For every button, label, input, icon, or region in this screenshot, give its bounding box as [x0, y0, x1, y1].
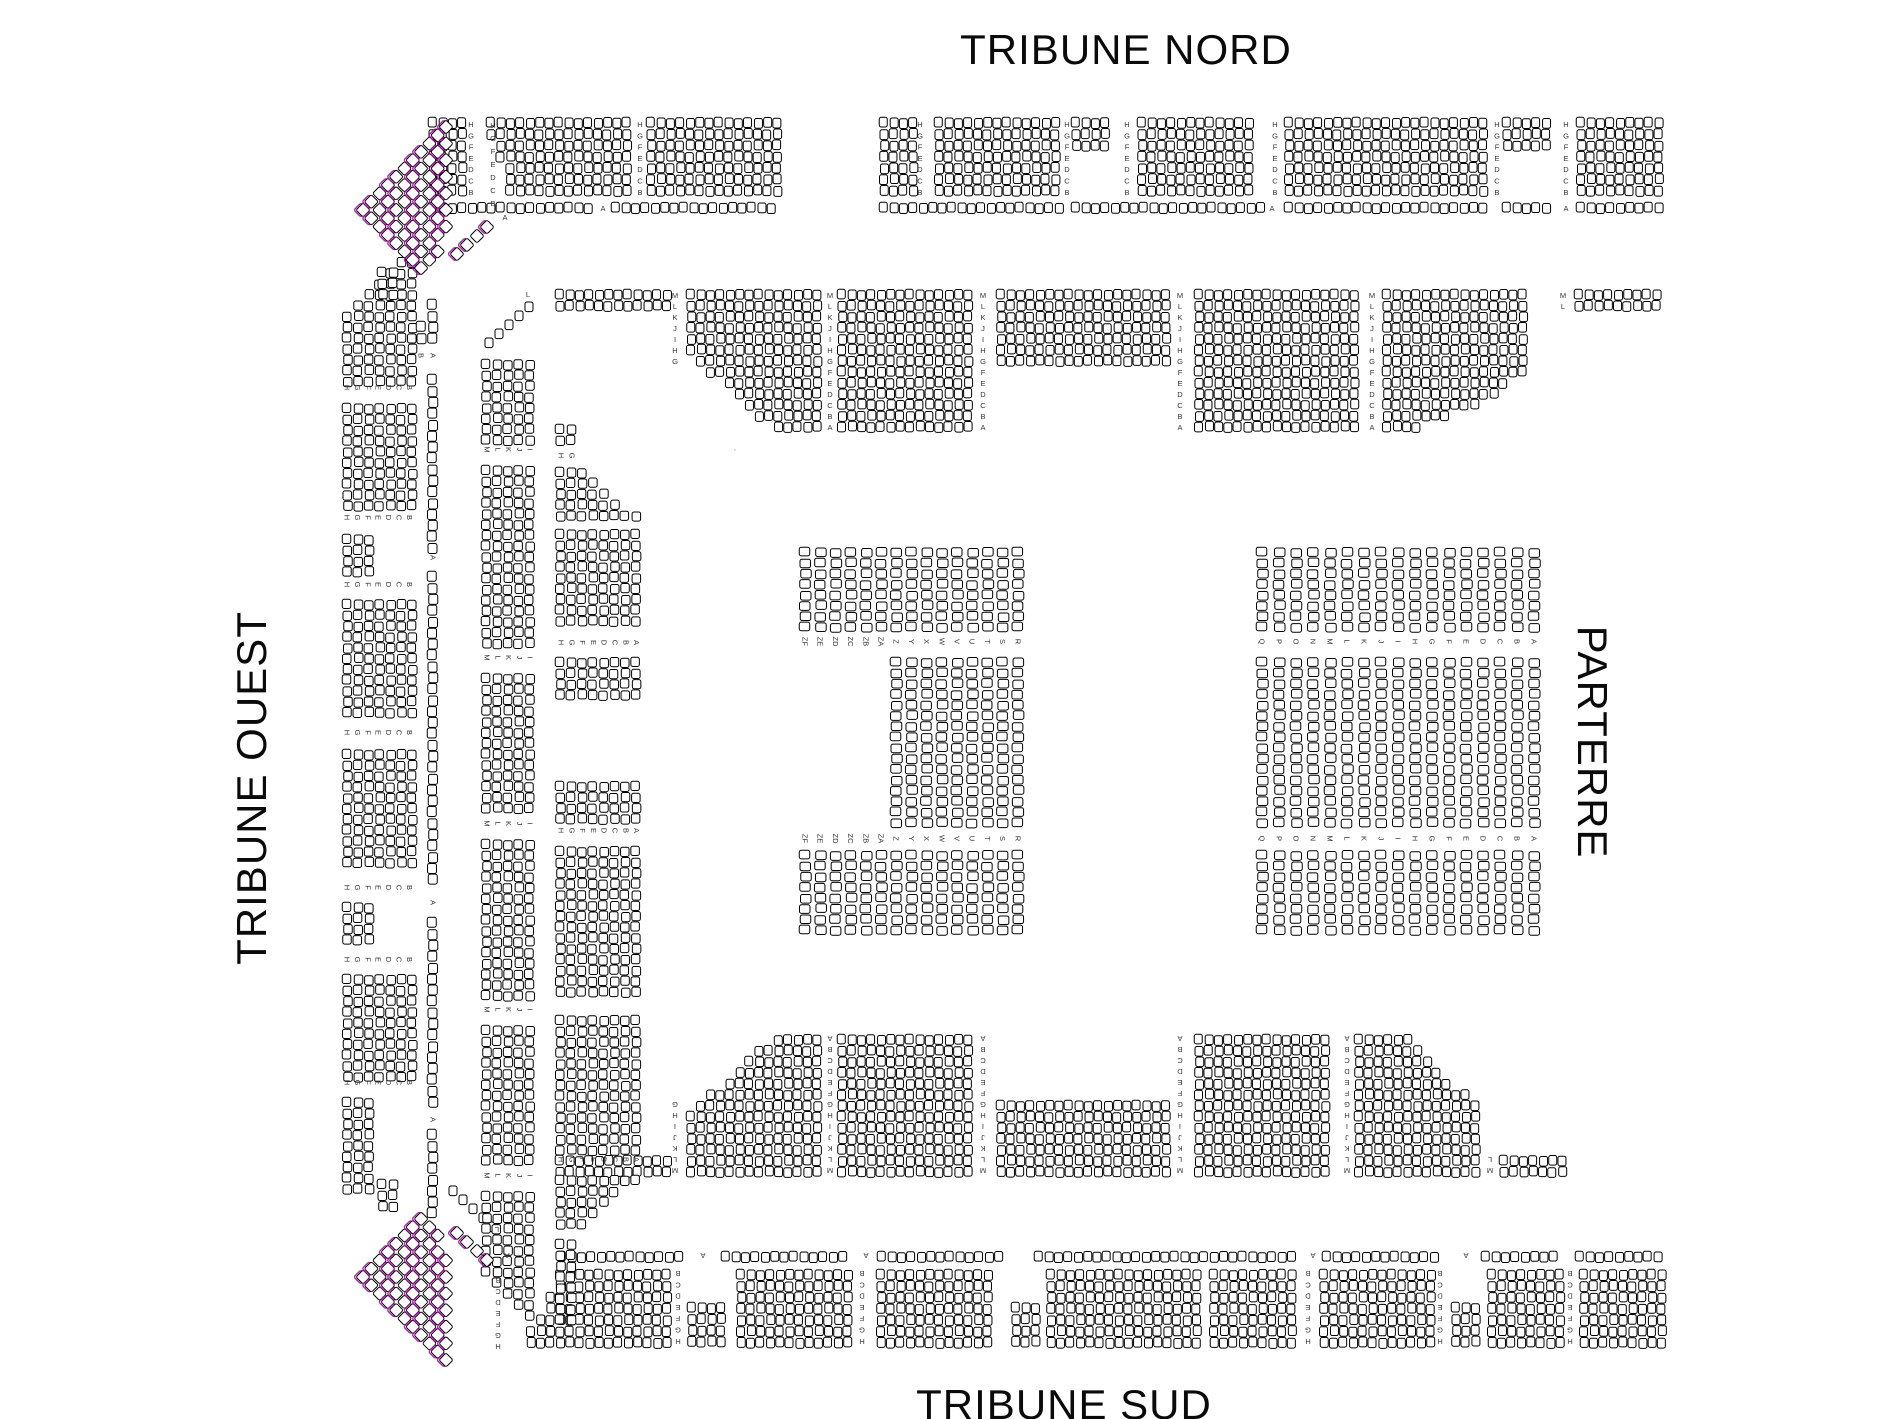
- seat[interactable]: [887, 1035, 895, 1045]
- seat[interactable]: [1295, 174, 1303, 184]
- seat[interactable]: [1596, 185, 1604, 195]
- seat[interactable]: [492, 707, 501, 716]
- seat[interactable]: [1286, 141, 1294, 151]
- seat[interactable]: [1312, 1091, 1320, 1101]
- seat[interactable]: [794, 1057, 802, 1067]
- seat[interactable]: [1273, 1079, 1281, 1089]
- seat[interactable]: [1374, 1134, 1382, 1144]
- seat[interactable]: [687, 1167, 695, 1177]
- seat[interactable]: [1360, 1271, 1368, 1281]
- seat[interactable]: [1411, 174, 1419, 184]
- seat[interactable]: [945, 1338, 953, 1348]
- seat[interactable]: [1426, 1326, 1434, 1336]
- seat[interactable]: [708, 1315, 716, 1325]
- seat[interactable]: [907, 1057, 915, 1067]
- seat[interactable]: [848, 411, 856, 421]
- seat[interactable]: [907, 1315, 915, 1325]
- seat[interactable]: [483, 1146, 492, 1155]
- seat[interactable]: [482, 425, 491, 434]
- seat[interactable]: [397, 622, 406, 631]
- seat[interactable]: [481, 990, 490, 999]
- seat[interactable]: [1224, 290, 1232, 300]
- seat[interactable]: [1388, 1303, 1396, 1313]
- seat[interactable]: [1461, 722, 1472, 731]
- seat[interactable]: [1138, 175, 1146, 185]
- seat[interactable]: [847, 1102, 855, 1112]
- seat[interactable]: [705, 140, 713, 150]
- seat[interactable]: [1442, 301, 1450, 311]
- seat[interactable]: [503, 695, 512, 704]
- seat[interactable]: [1096, 1327, 1104, 1337]
- seat[interactable]: [1084, 1167, 1092, 1177]
- seat[interactable]: [576, 1304, 584, 1314]
- seat[interactable]: [585, 1166, 593, 1176]
- seat[interactable]: [667, 151, 675, 161]
- seat[interactable]: [1115, 1282, 1123, 1292]
- seat[interactable]: [1071, 117, 1079, 127]
- seat[interactable]: [375, 479, 384, 488]
- seat[interactable]: [364, 924, 373, 933]
- seat[interactable]: [858, 322, 866, 332]
- seat[interactable]: [1407, 1316, 1415, 1326]
- seat[interactable]: [1252, 411, 1260, 421]
- seat[interactable]: [815, 558, 826, 567]
- seat[interactable]: [605, 1315, 613, 1325]
- seat[interactable]: [906, 1270, 914, 1280]
- seat[interactable]: [1204, 1123, 1212, 1133]
- seat[interactable]: [881, 164, 889, 174]
- seat[interactable]: [1056, 1168, 1064, 1178]
- seat[interactable]: [695, 162, 703, 172]
- seat[interactable]: [1048, 1293, 1056, 1303]
- seat[interactable]: [916, 1058, 924, 1068]
- seat[interactable]: [964, 1337, 972, 1347]
- seat[interactable]: [890, 163, 898, 173]
- seat[interactable]: [1275, 548, 1286, 557]
- seat[interactable]: [716, 290, 724, 300]
- seat[interactable]: [1646, 141, 1654, 151]
- seat[interactable]: [1461, 334, 1469, 344]
- seat[interactable]: [886, 1155, 894, 1165]
- seat[interactable]: [1013, 1326, 1021, 1336]
- seat[interactable]: [1204, 1068, 1212, 1078]
- seat[interactable]: [1278, 1253, 1286, 1263]
- seat[interactable]: [952, 883, 963, 892]
- seat[interactable]: [386, 709, 395, 718]
- seat[interactable]: [596, 1293, 604, 1303]
- seat[interactable]: [1355, 1068, 1363, 1078]
- seat[interactable]: [1311, 356, 1319, 366]
- seat[interactable]: [1224, 1112, 1232, 1122]
- seat[interactable]: [916, 367, 924, 377]
- seat[interactable]: [1342, 915, 1353, 924]
- seat[interactable]: [515, 883, 524, 892]
- seat[interactable]: [1151, 1167, 1159, 1177]
- seat[interactable]: [1314, 129, 1322, 139]
- seat[interactable]: [767, 1315, 775, 1325]
- seat[interactable]: [1410, 712, 1421, 721]
- seat[interactable]: [952, 580, 963, 589]
- seat[interactable]: [1176, 153, 1184, 163]
- seat[interactable]: [1091, 204, 1099, 214]
- seat[interactable]: [1226, 175, 1234, 185]
- seat[interactable]: [1031, 1325, 1039, 1335]
- seat[interactable]: [385, 804, 394, 813]
- seat[interactable]: [715, 313, 723, 323]
- seat[interactable]: [515, 141, 523, 151]
- seat[interactable]: [756, 312, 764, 322]
- seat[interactable]: [1094, 1157, 1102, 1167]
- seat[interactable]: [554, 175, 562, 185]
- seat[interactable]: [449, 130, 457, 140]
- seat[interactable]: [1375, 925, 1386, 934]
- seat[interactable]: [1205, 313, 1213, 323]
- seat[interactable]: [1444, 894, 1455, 903]
- seat[interactable]: [954, 1124, 962, 1134]
- seat[interactable]: [1393, 1090, 1401, 1100]
- seat[interactable]: [1445, 808, 1456, 817]
- seat[interactable]: [1085, 1133, 1093, 1143]
- seat[interactable]: [408, 1008, 417, 1017]
- seat[interactable]: [1341, 744, 1352, 753]
- seat[interactable]: [968, 712, 979, 721]
- seat[interactable]: [503, 1047, 512, 1056]
- seat[interactable]: [891, 926, 902, 935]
- seat[interactable]: [686, 289, 694, 299]
- seat[interactable]: [1409, 612, 1420, 621]
- seat[interactable]: [844, 1271, 852, 1281]
- seat[interactable]: [815, 894, 826, 903]
- seat[interactable]: [595, 301, 603, 311]
- seat[interactable]: [1205, 367, 1213, 377]
- seat[interactable]: [813, 1167, 821, 1177]
- seat[interactable]: [1383, 163, 1391, 173]
- seat[interactable]: [1113, 1252, 1121, 1262]
- seat[interactable]: [1243, 1124, 1251, 1134]
- seat[interactable]: [546, 1337, 554, 1347]
- seat[interactable]: [774, 1080, 782, 1090]
- seat[interactable]: [935, 1068, 943, 1078]
- seat[interactable]: [1325, 776, 1336, 785]
- seat[interactable]: [1376, 722, 1387, 731]
- seat[interactable]: [1234, 312, 1242, 322]
- seat[interactable]: [1394, 851, 1405, 860]
- seat[interactable]: [1529, 872, 1540, 881]
- seat[interactable]: [1377, 592, 1388, 601]
- seat[interactable]: [1450, 129, 1458, 139]
- seat[interactable]: [365, 345, 374, 354]
- seat[interactable]: [428, 333, 437, 343]
- seat[interactable]: [906, 743, 917, 752]
- seat[interactable]: [1233, 401, 1241, 411]
- seat[interactable]: [376, 490, 385, 499]
- seat[interactable]: [1512, 894, 1523, 903]
- seat[interactable]: [387, 751, 396, 760]
- seat[interactable]: [387, 501, 396, 510]
- seat[interactable]: [1404, 1134, 1412, 1144]
- seat[interactable]: [1610, 1315, 1618, 1325]
- seat[interactable]: [1496, 776, 1507, 785]
- seat[interactable]: [525, 685, 534, 694]
- seat[interactable]: [805, 1282, 813, 1292]
- seat[interactable]: [514, 862, 523, 871]
- seat[interactable]: [1481, 356, 1489, 366]
- seat[interactable]: [493, 1124, 502, 1133]
- seat[interactable]: [1460, 301, 1468, 311]
- seat[interactable]: [1369, 1304, 1377, 1314]
- seat[interactable]: [915, 1305, 923, 1315]
- seat[interactable]: [555, 164, 563, 174]
- seat[interactable]: [587, 1252, 595, 1262]
- seat[interactable]: [574, 119, 582, 129]
- seat[interactable]: [1195, 163, 1203, 173]
- seat[interactable]: [1014, 569, 1025, 578]
- seat[interactable]: [1293, 411, 1301, 421]
- seat[interactable]: [1096, 1270, 1104, 1280]
- seat[interactable]: [427, 1208, 436, 1218]
- seat[interactable]: [1182, 1269, 1190, 1279]
- seat[interactable]: [397, 815, 406, 824]
- seat[interactable]: [937, 797, 948, 806]
- seat[interactable]: [1292, 764, 1303, 773]
- seat[interactable]: [1461, 390, 1469, 400]
- seat[interactable]: [1331, 400, 1339, 410]
- seat[interactable]: [1301, 345, 1309, 355]
- seat[interactable]: [1308, 808, 1319, 817]
- seat[interactable]: [408, 490, 417, 499]
- seat[interactable]: [376, 760, 385, 769]
- seat[interactable]: [546, 187, 554, 197]
- seat[interactable]: [343, 458, 352, 467]
- seat[interactable]: [907, 711, 918, 720]
- seat[interactable]: [482, 728, 491, 737]
- seat[interactable]: [889, 129, 897, 139]
- seat[interactable]: [1427, 883, 1438, 892]
- seat[interactable]: [955, 130, 963, 140]
- seat[interactable]: [1161, 1101, 1169, 1111]
- seat[interactable]: [365, 1174, 374, 1183]
- seat[interactable]: [504, 851, 512, 860]
- seat[interactable]: [482, 392, 491, 401]
- seat[interactable]: [504, 1080, 512, 1089]
- seat[interactable]: [1032, 129, 1040, 139]
- seat[interactable]: [428, 520, 437, 530]
- seat[interactable]: [736, 367, 744, 377]
- seat[interactable]: [1085, 1326, 1093, 1336]
- seat[interactable]: [698, 1303, 706, 1313]
- seat[interactable]: [1634, 301, 1642, 311]
- seat[interactable]: [875, 862, 886, 871]
- seat[interactable]: [1341, 559, 1352, 568]
- seat[interactable]: [1179, 204, 1187, 214]
- seat[interactable]: [1413, 1167, 1421, 1177]
- seat[interactable]: [1451, 356, 1459, 366]
- seat[interactable]: [1513, 141, 1521, 151]
- seat[interactable]: [1301, 1069, 1309, 1079]
- seat[interactable]: [983, 548, 994, 557]
- seat[interactable]: [574, 140, 582, 150]
- seat[interactable]: [688, 1134, 696, 1144]
- seat[interactable]: [1559, 1167, 1567, 1177]
- seat[interactable]: [1513, 808, 1524, 817]
- seat[interactable]: [643, 291, 651, 301]
- seat[interactable]: [899, 164, 907, 174]
- seat[interactable]: [1359, 1337, 1367, 1347]
- seat[interactable]: [764, 118, 772, 128]
- seat[interactable]: [1214, 1036, 1222, 1046]
- seat[interactable]: [1590, 1315, 1598, 1325]
- seat[interactable]: [515, 370, 524, 379]
- seat[interactable]: [1075, 1155, 1083, 1165]
- seat[interactable]: [1113, 1144, 1121, 1154]
- seat[interactable]: [536, 141, 544, 151]
- seat[interactable]: [1193, 1270, 1201, 1280]
- seat[interactable]: [564, 186, 572, 196]
- seat[interactable]: [1273, 411, 1281, 421]
- seat[interactable]: [1528, 1271, 1536, 1281]
- seat[interactable]: [1372, 140, 1380, 150]
- seat[interactable]: [696, 152, 704, 162]
- seat[interactable]: [1376, 819, 1387, 828]
- seat[interactable]: [535, 186, 543, 196]
- seat[interactable]: [1403, 1101, 1411, 1111]
- seat[interactable]: [877, 1251, 885, 1261]
- seat[interactable]: [1275, 786, 1286, 795]
- seat[interactable]: [964, 345, 972, 355]
- seat[interactable]: [457, 141, 465, 151]
- seat[interactable]: [428, 639, 437, 649]
- seat[interactable]: [706, 1101, 714, 1111]
- seat[interactable]: [515, 1036, 524, 1045]
- seat[interactable]: [776, 1337, 784, 1347]
- seat[interactable]: [945, 312, 953, 322]
- seat[interactable]: [1443, 711, 1454, 720]
- seat[interactable]: [804, 323, 812, 333]
- seat[interactable]: [1359, 808, 1370, 817]
- seat[interactable]: [525, 1135, 534, 1144]
- seat[interactable]: [429, 421, 438, 431]
- seat[interactable]: [1065, 335, 1073, 345]
- seat[interactable]: [545, 118, 553, 128]
- seat[interactable]: [1529, 809, 1540, 818]
- seat[interactable]: [1013, 711, 1024, 720]
- seat[interactable]: [1403, 1078, 1411, 1088]
- seat[interactable]: [724, 129, 732, 139]
- seat[interactable]: [1409, 722, 1420, 731]
- seat[interactable]: [408, 1061, 417, 1070]
- seat[interactable]: [1301, 422, 1309, 432]
- seat[interactable]: [1402, 175, 1410, 185]
- seat[interactable]: [386, 344, 395, 353]
- seat[interactable]: [906, 1047, 914, 1057]
- seat[interactable]: [1402, 203, 1410, 213]
- seat[interactable]: [757, 1303, 765, 1313]
- seat[interactable]: [1649, 1293, 1657, 1303]
- seat[interactable]: [1384, 1112, 1392, 1122]
- seat[interactable]: [365, 611, 374, 620]
- seat[interactable]: [1016, 291, 1024, 301]
- seat[interactable]: [1440, 175, 1448, 185]
- seat[interactable]: [1075, 1145, 1083, 1155]
- seat[interactable]: [387, 355, 396, 364]
- seat[interactable]: [1644, 117, 1652, 127]
- seat[interactable]: [1393, 798, 1404, 807]
- seat[interactable]: [429, 774, 438, 784]
- seat[interactable]: [1343, 140, 1351, 150]
- seat[interactable]: [503, 980, 512, 989]
- seat[interactable]: [774, 1157, 782, 1167]
- seat[interactable]: [936, 1252, 944, 1262]
- seat[interactable]: [921, 809, 932, 818]
- seat[interactable]: [813, 1056, 821, 1066]
- seat[interactable]: [984, 141, 992, 151]
- seat[interactable]: [1205, 344, 1213, 354]
- seat[interactable]: [775, 1326, 783, 1336]
- seat[interactable]: [504, 1027, 512, 1036]
- seat[interactable]: [925, 312, 933, 322]
- seat[interactable]: [896, 1271, 904, 1281]
- seat[interactable]: [1460, 185, 1468, 195]
- seat[interactable]: [697, 1166, 705, 1176]
- seat[interactable]: [936, 1281, 944, 1291]
- seat[interactable]: [1379, 1339, 1387, 1349]
- seat[interactable]: [1445, 549, 1456, 558]
- seat[interactable]: [756, 1337, 764, 1347]
- seat[interactable]: [526, 916, 535, 925]
- seat[interactable]: [846, 861, 857, 870]
- seat[interactable]: [1462, 580, 1473, 589]
- seat[interactable]: [935, 423, 943, 433]
- seat[interactable]: [1411, 689, 1422, 698]
- seat[interactable]: [909, 175, 917, 185]
- seat[interactable]: [1526, 1305, 1534, 1315]
- seat[interactable]: [663, 291, 671, 301]
- seat[interactable]: [1378, 1292, 1386, 1302]
- seat[interactable]: [478, 203, 486, 213]
- seat[interactable]: [1477, 591, 1488, 600]
- seat[interactable]: [1321, 324, 1329, 334]
- seat[interactable]: [938, 559, 949, 568]
- seat[interactable]: [783, 1058, 791, 1068]
- seat[interactable]: [1311, 302, 1319, 312]
- seat[interactable]: [804, 400, 812, 410]
- seat[interactable]: [1408, 1327, 1416, 1337]
- seat[interactable]: [1238, 1251, 1246, 1261]
- seat[interactable]: [717, 356, 725, 366]
- seat[interactable]: [1654, 129, 1662, 139]
- seat[interactable]: [1234, 378, 1242, 388]
- seat[interactable]: [1275, 733, 1286, 742]
- seat[interactable]: [794, 1156, 802, 1166]
- seat[interactable]: [1263, 400, 1271, 410]
- seat[interactable]: [1392, 185, 1400, 195]
- seat[interactable]: [1489, 1316, 1497, 1326]
- seat[interactable]: [1478, 601, 1489, 610]
- seat[interactable]: [1377, 872, 1388, 881]
- seat[interactable]: [1133, 1134, 1141, 1144]
- seat[interactable]: [1427, 658, 1438, 667]
- seat[interactable]: [997, 548, 1008, 557]
- seat[interactable]: [1342, 1253, 1350, 1263]
- seat[interactable]: [1596, 140, 1604, 150]
- seat[interactable]: [1205, 1156, 1213, 1166]
- seat[interactable]: [1411, 559, 1422, 568]
- seat[interactable]: [525, 499, 534, 508]
- seat[interactable]: [1444, 819, 1455, 828]
- seat[interactable]: [631, 204, 639, 214]
- seat[interactable]: [1394, 623, 1405, 632]
- seat[interactable]: [365, 436, 374, 445]
